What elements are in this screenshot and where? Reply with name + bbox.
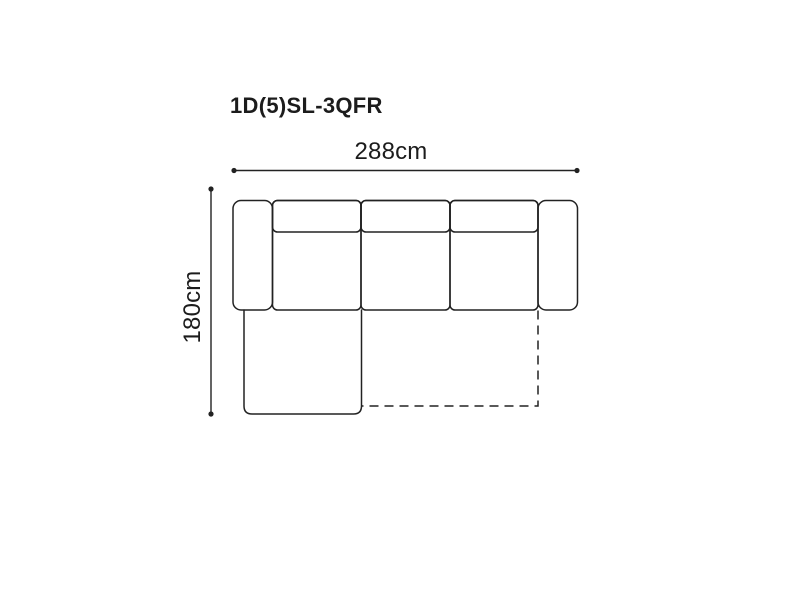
sofa-outline xyxy=(233,201,578,415)
height-dimension-top-endpoint-dot xyxy=(208,186,213,191)
width-dimension-left-endpoint-dot xyxy=(231,168,236,173)
width-dimension-right-endpoint-dot xyxy=(574,168,579,173)
back-cushion-2 xyxy=(361,201,450,233)
back-cushion-3 xyxy=(450,201,538,233)
seat-section-2 xyxy=(361,201,450,311)
fold-out-bed-dashed-outline xyxy=(362,311,539,407)
seat-section-3 xyxy=(450,201,538,311)
back-cushion-1 xyxy=(273,201,362,233)
dimension-annotations xyxy=(208,168,579,417)
sofa-dimension-diagram: 1D(5)SL-3QFR 288cm 180cm xyxy=(0,0,800,600)
chaise-extension xyxy=(244,310,362,414)
left-armrest xyxy=(233,201,273,311)
height-dimension-bottom-endpoint-dot xyxy=(208,411,213,416)
seat-section-1 xyxy=(273,201,362,311)
sofa-top-view-drawing xyxy=(0,0,800,600)
right-armrest xyxy=(538,201,578,311)
